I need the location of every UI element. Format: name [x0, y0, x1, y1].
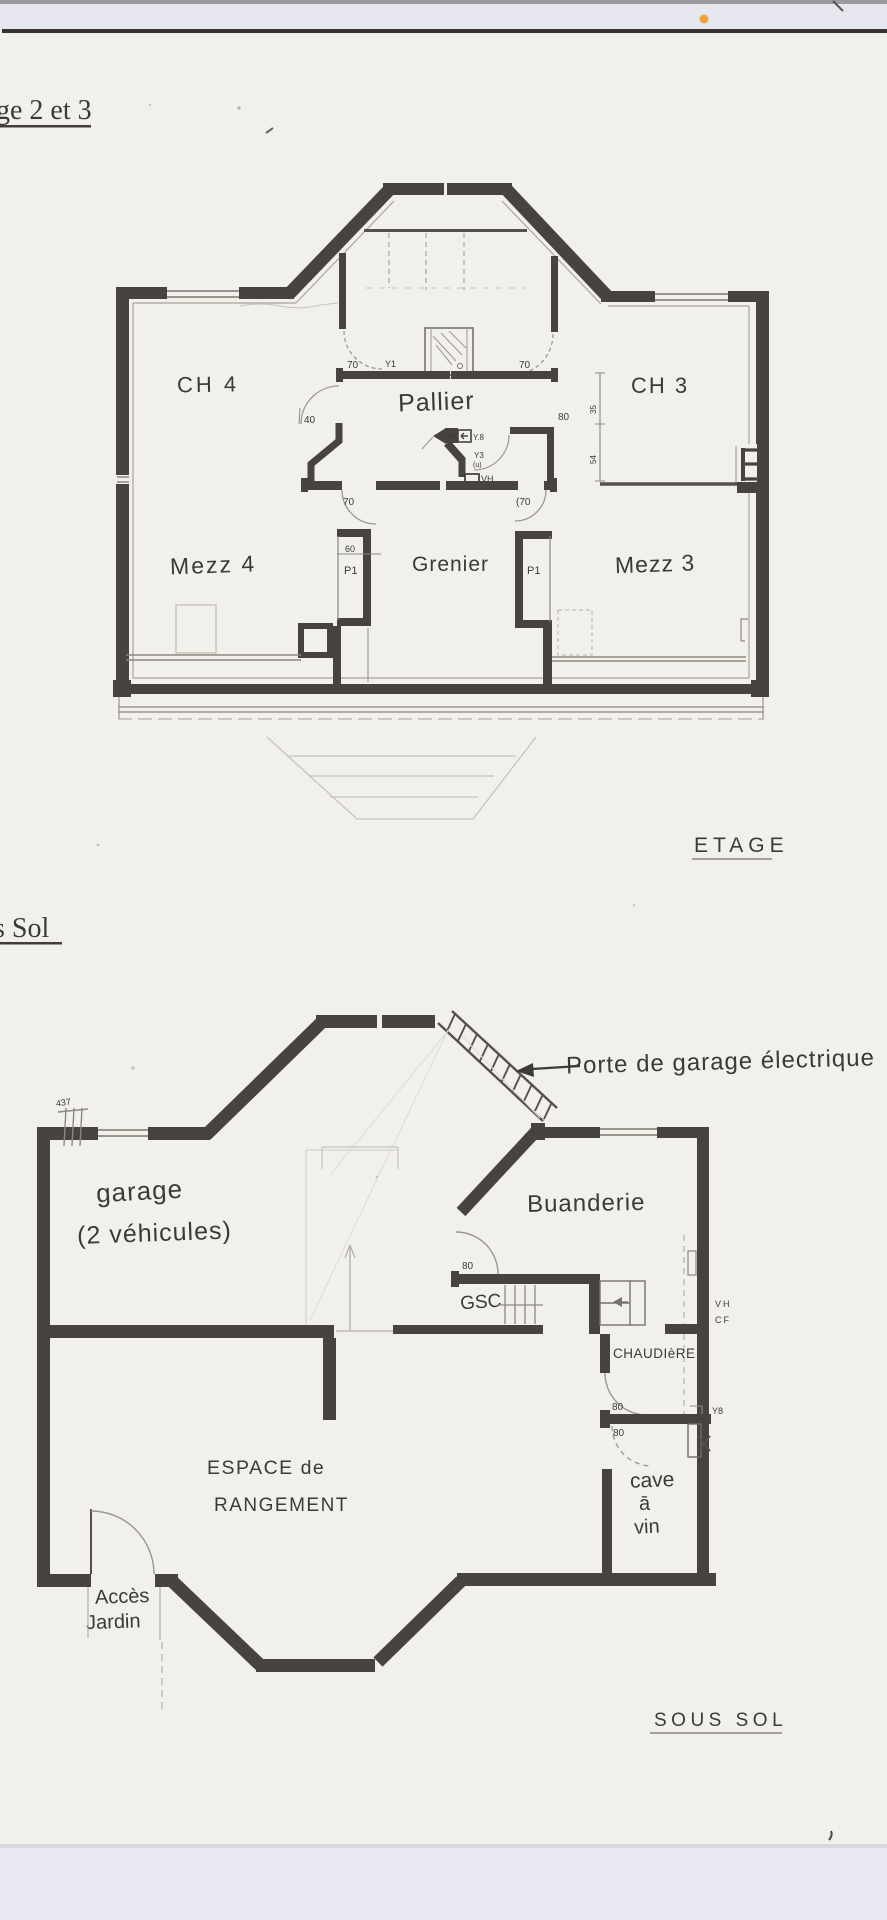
svg-text:Jardin: Jardin	[86, 1610, 141, 1634]
svg-text:cave: cave	[630, 1468, 675, 1493]
svg-text:Y3: Y3	[474, 451, 484, 460]
svg-text:Grenier: Grenier	[412, 553, 489, 576]
svg-text:CH 4: CH 4	[177, 371, 240, 397]
svg-text:70: 70	[519, 360, 531, 371]
svg-text:80: 80	[613, 1428, 625, 1439]
svg-text:CH 3: CH 3	[631, 373, 689, 398]
svg-text:GSC: GSC	[459, 1291, 502, 1315]
svg-text:Y.8: Y.8	[473, 433, 485, 442]
svg-text:54: 54	[589, 455, 598, 464]
svg-text:Mezz 4: Mezz 4	[170, 550, 257, 579]
svg-text:80: 80	[462, 1261, 474, 1272]
svg-text:garage: garage	[95, 1174, 183, 1209]
svg-text:60: 60	[345, 544, 355, 554]
svg-text:(70: (70	[516, 497, 531, 508]
svg-text:Y1: Y1	[385, 359, 396, 369]
svg-text:Pallier: Pallier	[398, 387, 475, 418]
svg-text:Mezz 3: Mezz 3	[615, 549, 696, 578]
svg-text:Buanderie: Buanderie	[527, 1189, 646, 1218]
svg-text:CF: CF	[715, 1315, 731, 1325]
svg-text:40: 40	[304, 415, 316, 426]
svg-text:437: 437	[55, 1097, 71, 1109]
svg-text:SOUS SOL: SOUS SOL	[654, 1710, 787, 1731]
svg-text:RANGEMENT: RANGEMENT	[214, 1495, 349, 1516]
svg-text:s Sol: s Sol	[0, 913, 49, 944]
svg-text:70: 70	[347, 360, 359, 371]
svg-text:70: 70	[343, 497, 355, 508]
svg-text:vin: vin	[634, 1516, 661, 1539]
svg-text:P1: P1	[344, 565, 357, 577]
svg-text:VH: VH	[446, 434, 456, 441]
svg-text:ge 2 et 3: ge 2 et 3	[0, 95, 92, 126]
svg-text:VH: VH	[715, 1299, 732, 1309]
svg-text:80: 80	[558, 412, 570, 423]
svg-text:ā: ā	[639, 1493, 651, 1515]
svg-text:CHAUDIèRE: CHAUDIèRE	[613, 1346, 696, 1361]
svg-text:ETAGE: ETAGE	[694, 834, 789, 857]
svg-text:ESPACE de: ESPACE de	[207, 1457, 325, 1479]
svg-text:Y8: Y8	[712, 1406, 723, 1416]
svg-text:80: 80	[612, 1402, 624, 1413]
svg-text:P1: P1	[527, 565, 540, 577]
svg-text:Accès: Accès	[95, 1585, 150, 1609]
svg-text:(2 véhicules): (2 véhicules)	[77, 1217, 233, 1250]
svg-text:(u): (u)	[473, 462, 482, 469]
svg-text:35: 35	[589, 405, 598, 414]
